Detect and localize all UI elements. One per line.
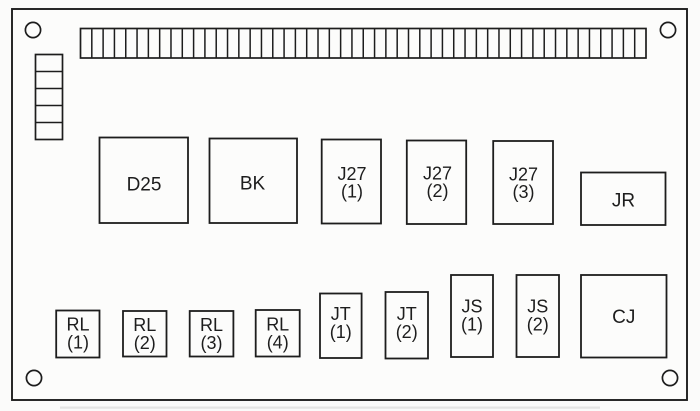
svg-text:(2): (2) [527, 314, 549, 334]
svg-text:RL: RL [133, 315, 156, 335]
svg-text:(3): (3) [513, 182, 535, 202]
svg-text:(2): (2) [427, 181, 449, 201]
svg-text:RL: RL [200, 315, 223, 335]
svg-text:(1): (1) [461, 314, 483, 334]
svg-text:JS: JS [527, 296, 548, 316]
svg-text:RL: RL [66, 314, 89, 334]
svg-text:(1): (1) [341, 181, 363, 201]
svg-text:D25: D25 [127, 175, 162, 196]
svg-text:RL: RL [266, 314, 289, 334]
svg-text:(3): (3) [201, 333, 223, 353]
svg-text:(2): (2) [396, 322, 418, 342]
svg-text:(4): (4) [267, 332, 289, 352]
svg-text:JS: JS [461, 296, 482, 316]
svg-text:BK: BK [240, 174, 266, 195]
svg-text:(1): (1) [67, 332, 89, 352]
svg-text:(2): (2) [134, 333, 156, 353]
svg-text:JR: JR [612, 190, 635, 211]
svg-text:CJ: CJ [612, 307, 635, 328]
svg-text:(1): (1) [330, 322, 352, 342]
